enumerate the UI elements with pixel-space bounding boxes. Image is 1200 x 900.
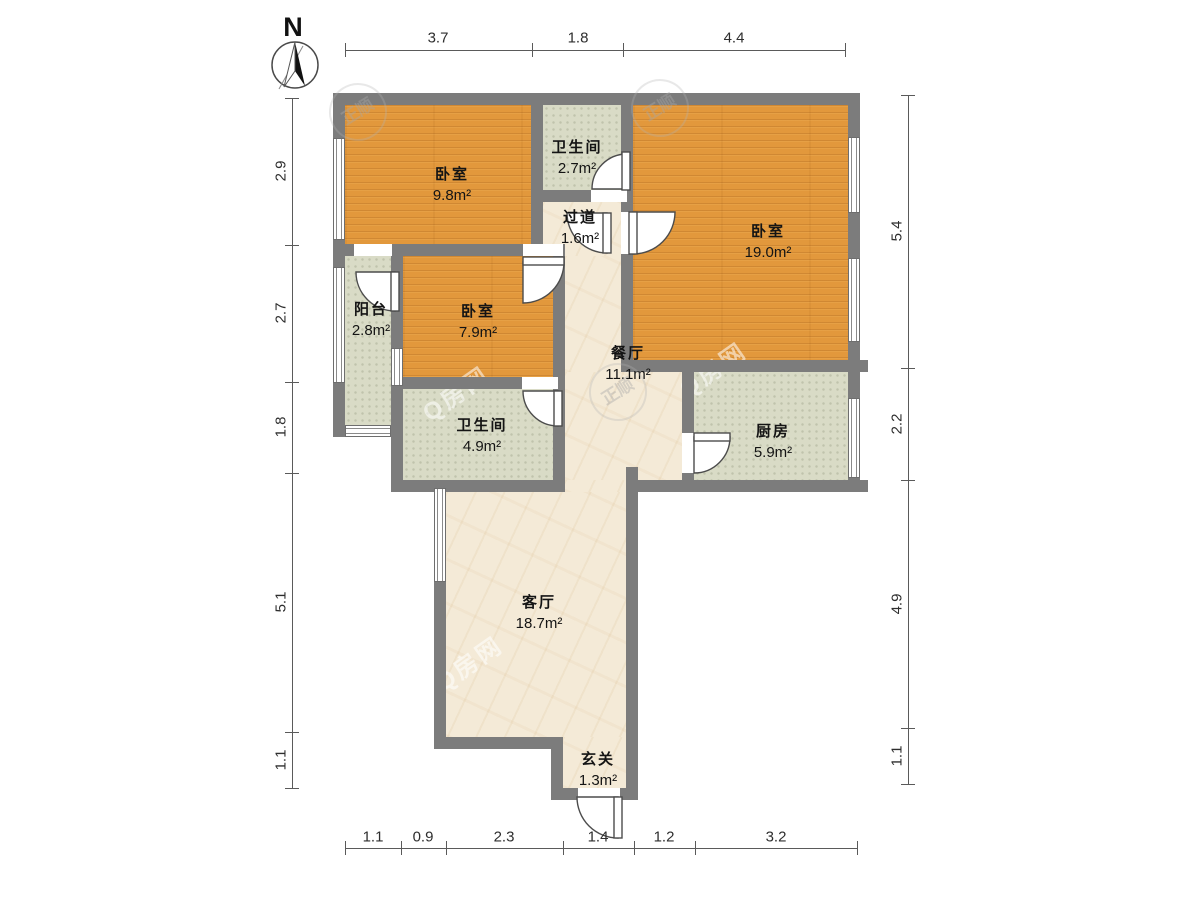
ruler-line xyxy=(292,98,293,788)
wall xyxy=(391,480,565,492)
ruler-tick xyxy=(901,728,915,729)
door-opening xyxy=(523,244,563,256)
bedroom2-floor xyxy=(633,105,848,360)
dimension-label: 2.9 xyxy=(273,161,290,182)
window xyxy=(345,425,391,437)
dimension-label: 1.4 xyxy=(588,829,609,846)
compass-needle xyxy=(295,42,305,86)
dimension-label: 1.8 xyxy=(568,30,589,47)
ruler-tick xyxy=(857,841,858,855)
ruler-tick xyxy=(901,95,915,96)
window xyxy=(333,138,345,240)
ruler-tick xyxy=(901,480,915,481)
door-opening xyxy=(621,212,633,254)
dimension-label: 5.4 xyxy=(889,221,906,242)
ruler-line xyxy=(908,95,909,784)
door-opening xyxy=(682,433,694,473)
dimension-label: 2.3 xyxy=(494,829,515,846)
ruler-tick xyxy=(901,784,915,785)
room-name: 卧室 xyxy=(433,164,471,185)
dining-floor xyxy=(565,480,626,492)
room-area: 1.3m² xyxy=(579,770,617,791)
room-area: 18.7m² xyxy=(516,613,563,634)
ruler-tick xyxy=(345,43,346,57)
room-area: 7.9m² xyxy=(459,322,497,343)
ruler-tick xyxy=(532,43,533,57)
dimension-label: 4.4 xyxy=(724,30,745,47)
ruler-tick xyxy=(285,98,299,99)
room-area: 19.0m² xyxy=(745,242,792,263)
compass-north-label: N xyxy=(283,12,303,42)
room-name: 卫生间 xyxy=(551,137,602,158)
ruler-tick xyxy=(845,43,846,57)
room-name: 餐厅 xyxy=(605,343,651,364)
wall xyxy=(333,93,860,105)
room-label-bathroom2: 卫生间 4.9m² xyxy=(456,415,507,457)
window xyxy=(848,258,860,342)
room-label-bedroom1: 卧室 9.8m² xyxy=(433,164,471,206)
wall xyxy=(434,737,563,749)
wall xyxy=(621,360,868,372)
door-opening xyxy=(522,377,558,389)
wall xyxy=(553,244,565,480)
room-label-bathroom1: 卫生间 2.7m² xyxy=(551,137,602,179)
room-label-bedroom2: 卧室 19.0m² xyxy=(745,221,792,263)
room-name: 阳台 xyxy=(352,299,390,320)
door-opening xyxy=(354,244,392,256)
door-opening xyxy=(591,190,627,202)
room-area: 1.6m² xyxy=(561,228,599,249)
dimension-label: 3.7 xyxy=(428,30,449,47)
room-name: 客厅 xyxy=(516,592,563,613)
wall xyxy=(626,480,868,492)
room-area: 2.8m² xyxy=(352,320,390,341)
room-label-balcony: 阳台 2.8m² xyxy=(352,299,390,341)
ruler-tick xyxy=(446,841,447,855)
ruler-tick xyxy=(345,841,346,855)
room-area: 4.9m² xyxy=(456,436,507,457)
dimension-label: 1.1 xyxy=(889,746,906,767)
ruler-tick xyxy=(901,368,915,369)
door-leaf xyxy=(614,797,622,838)
ruler-tick xyxy=(285,245,299,246)
floor-plan: Q房网 Q房网 Q房网 Q房网 xyxy=(0,0,1200,900)
room-label-hallway: 过道 1.6m² xyxy=(561,207,599,249)
room-label-entry: 玄关 1.3m² xyxy=(579,749,617,791)
ruler-tick xyxy=(695,841,696,855)
room-area: 5.9m² xyxy=(754,442,792,463)
room-name: 玄关 xyxy=(579,749,617,770)
compass-needle xyxy=(284,42,295,87)
window xyxy=(848,137,860,213)
dimension-label: 1.8 xyxy=(273,417,290,438)
wall xyxy=(531,105,543,244)
room-name: 卫生间 xyxy=(456,415,507,436)
wall xyxy=(626,467,638,800)
ruler-tick xyxy=(285,382,299,383)
ruler-line xyxy=(345,50,845,51)
window xyxy=(848,398,860,478)
dimension-label: 4.9 xyxy=(889,594,906,615)
dimension-label: 0.9 xyxy=(413,829,434,846)
room-area: 2.7m² xyxy=(551,158,602,179)
ruler-tick xyxy=(285,732,299,733)
dimension-label: 1.2 xyxy=(654,829,675,846)
window xyxy=(434,488,446,582)
dimension-label: 2.2 xyxy=(889,414,906,435)
ruler-tick xyxy=(401,841,402,855)
ruler-tick xyxy=(623,43,624,57)
compass-icon: N xyxy=(272,12,318,89)
room-name: 卧室 xyxy=(459,301,497,322)
room-name: 过道 xyxy=(561,207,599,228)
ruler-line xyxy=(345,848,857,849)
room-name: 卧室 xyxy=(745,221,792,242)
ruler-tick xyxy=(285,473,299,474)
room-label-living: 客厅 18.7m² xyxy=(516,592,563,634)
room-label-bedroom3: 卧室 7.9m² xyxy=(459,301,497,343)
dimension-label: 2.7 xyxy=(273,303,290,324)
dimension-label: 1.1 xyxy=(363,829,384,846)
brand-watermark: Q房网 xyxy=(697,600,779,672)
room-name: 厨房 xyxy=(754,421,792,442)
window xyxy=(333,267,345,383)
room-area: 9.8m² xyxy=(433,185,471,206)
room-label-kitchen: 厨房 5.9m² xyxy=(754,421,792,463)
ruler-tick xyxy=(634,841,635,855)
dimension-label: 5.1 xyxy=(273,592,290,613)
dimension-label: 3.2 xyxy=(766,829,787,846)
dimension-label: 1.1 xyxy=(273,750,290,771)
ruler-tick xyxy=(563,841,564,855)
window xyxy=(391,348,403,386)
ruler-tick xyxy=(285,788,299,789)
